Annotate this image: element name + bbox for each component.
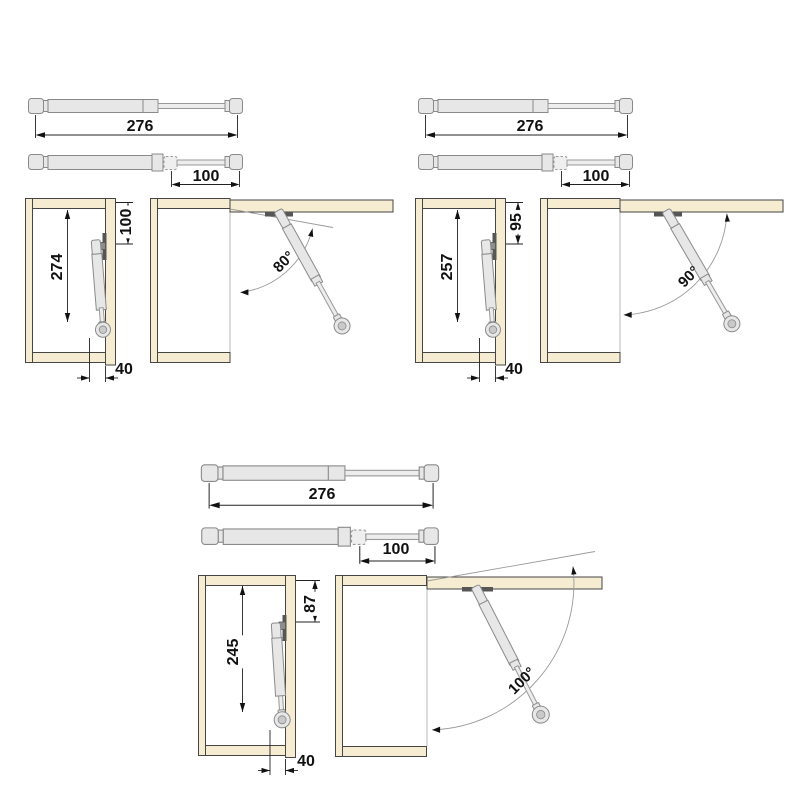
strut-length-dim-label: 276: [127, 119, 154, 135]
rod-length-dim-label: 100: [383, 542, 410, 558]
mount-depth-dim-label: 245: [225, 636, 243, 669]
rod-length-dim-label: 100: [583, 169, 610, 185]
door-offset-dim-label: 87: [302, 592, 320, 616]
strut-length-dim-label: 276: [309, 487, 336, 503]
open-cabinet-drawing: [538, 196, 796, 371]
door-offset-dim-label: 100: [118, 206, 136, 239]
bottom-offset-dim-label: 40: [297, 754, 315, 770]
rod-length-dim-label: 100: [193, 169, 220, 185]
mount-depth-dim-label: 274: [49, 251, 67, 284]
door-offset-dim-label: 95: [508, 210, 526, 234]
bottom-offset-dim-label: 40: [505, 362, 523, 378]
mount-depth-dim-label: 257: [439, 251, 457, 284]
open-cabinet-drawing: [333, 540, 625, 775]
diagram-canvas: 276 100 274 100 40 80°: [0, 0, 800, 800]
open-cabinet-drawing: [148, 196, 400, 371]
strut-length-dim-label: 276: [517, 119, 544, 135]
bottom-offset-dim-label: 40: [115, 362, 133, 378]
